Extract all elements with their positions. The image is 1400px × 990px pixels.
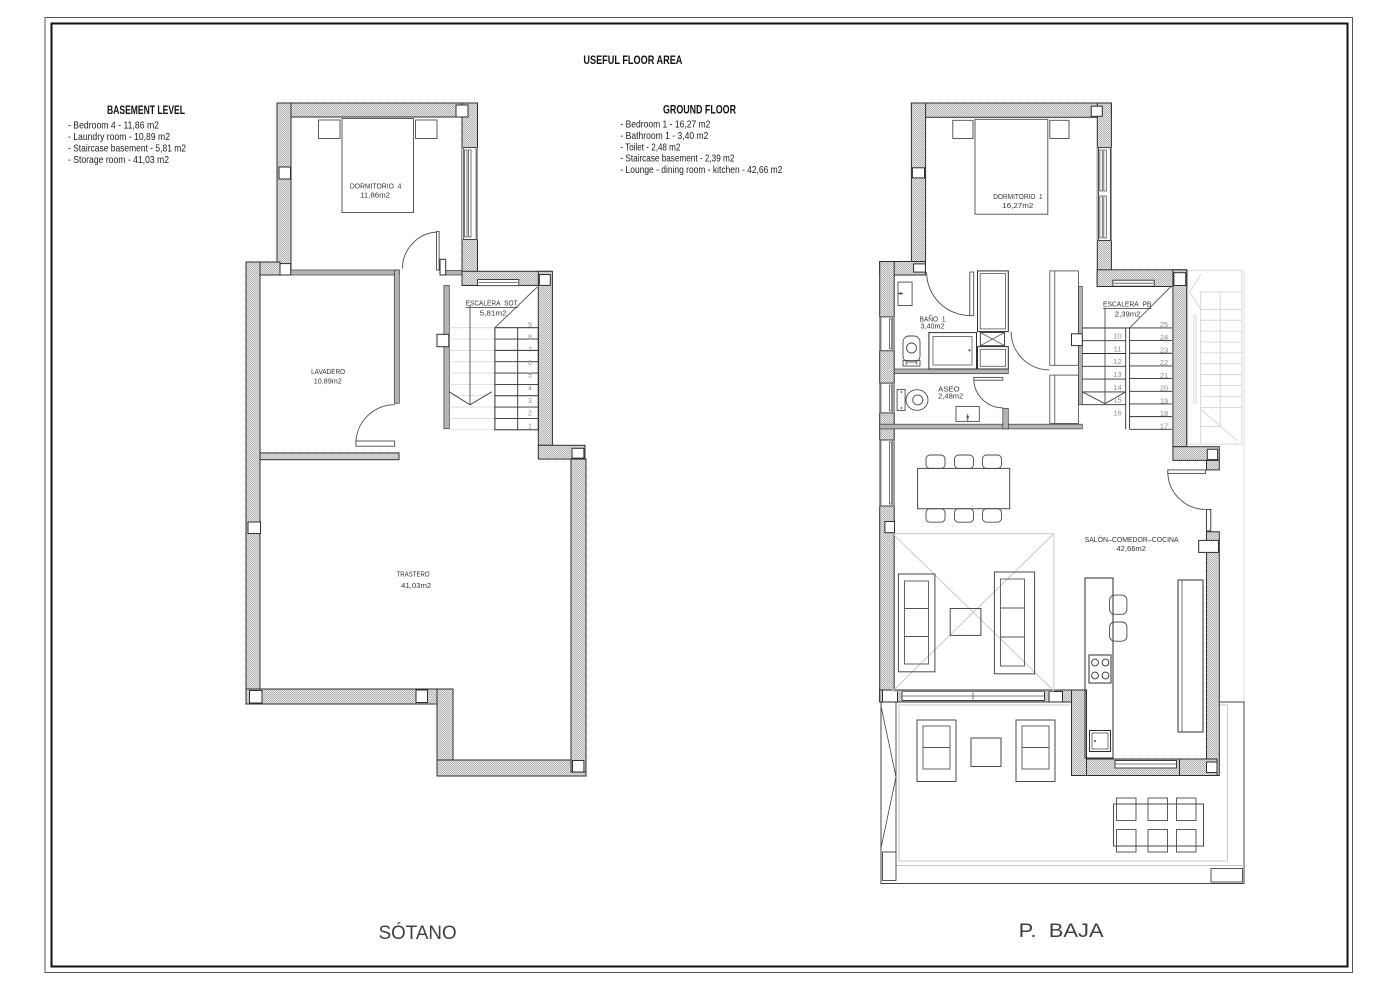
svg-text:22: 22	[1160, 358, 1168, 367]
svg-text:SÓTANO: SÓTANO	[379, 922, 457, 944]
svg-text:7: 7	[528, 347, 532, 354]
svg-text:ASEO: ASEO	[938, 386, 960, 393]
svg-text:10,89m2: 10,89m2	[314, 378, 342, 385]
svg-text:TRASTERO: TRASTERO	[397, 572, 430, 579]
svg-text:6: 6	[528, 360, 532, 367]
svg-text:42,66m2: 42,66m2	[1116, 546, 1146, 553]
svg-text:41,03m2: 41,03m2	[401, 583, 431, 590]
svg-text:LAVADERO: LAVADERO	[311, 369, 346, 376]
svg-text:8: 8	[528, 335, 532, 342]
svg-text:13: 13	[1113, 370, 1121, 379]
svg-text:21: 21	[1160, 371, 1168, 380]
svg-text:24: 24	[1160, 333, 1168, 342]
svg-text:17: 17	[1160, 422, 1168, 431]
svg-text:19: 19	[1160, 396, 1168, 405]
svg-text:ESCALERA PB: ESCALERA PB	[1103, 302, 1152, 309]
svg-text:SALÓN–COMEDOR–COCINA: SALÓN–COMEDOR–COCINA	[1085, 535, 1179, 544]
svg-text:4: 4	[528, 385, 532, 392]
svg-text:11,86m2: 11,86m2	[360, 192, 390, 199]
svg-text:- Staircase basement - 2,39 m2: - Staircase basement - 2,39 m2	[620, 153, 734, 165]
svg-text:3: 3	[528, 398, 532, 405]
svg-text:5: 5	[528, 373, 532, 380]
svg-text:12: 12	[1113, 357, 1121, 366]
svg-text:1: 1	[528, 423, 532, 430]
svg-text:DORMITORIO 4: DORMITORIO 4	[350, 183, 402, 190]
svg-text:14: 14	[1113, 383, 1121, 392]
svg-text:18: 18	[1160, 409, 1168, 418]
svg-text:- Staircase basement - 5,81 m2: - Staircase basement - 5,81 m2	[68, 142, 186, 154]
svg-text:11: 11	[1114, 344, 1122, 353]
svg-text:GROUND FLOOR: GROUND FLOOR	[663, 105, 737, 117]
svg-text:10: 10	[1113, 332, 1121, 341]
svg-text:ESCALERA SOT: ESCALERA SOT	[466, 301, 519, 308]
svg-text:16,27m2: 16,27m2	[1002, 203, 1033, 210]
svg-text:23: 23	[1160, 346, 1168, 355]
svg-text:20: 20	[1160, 384, 1168, 393]
svg-text:15: 15	[1113, 396, 1121, 405]
svg-text:- Bathroom 1 - 3,40 m2: - Bathroom 1 - 3,40 m2	[620, 130, 708, 142]
svg-text:DORMITORIO 1: DORMITORIO 1	[993, 194, 1043, 201]
svg-text:2: 2	[528, 411, 532, 418]
svg-text:BAÑO 1: BAÑO 1	[920, 314, 946, 323]
svg-text:16: 16	[1113, 408, 1121, 417]
svg-text:USEFUL FLOOR AREA: USEFUL FLOOR AREA	[583, 53, 682, 67]
svg-text:BASEMENT LEVEL: BASEMENT LEVEL	[107, 105, 185, 117]
svg-text:- Laundry room - 10,89 m2: - Laundry room - 10,89 m2	[68, 131, 170, 143]
svg-text:- Storage room - 41,03 m2: - Storage room - 41,03 m2	[68, 154, 169, 166]
svg-text:- Bedroom 4 - 11,86 m2: - Bedroom 4 - 11,86 m2	[68, 120, 159, 132]
svg-text:9: 9	[528, 322, 532, 329]
svg-text:- Bedroom 1 - 16,27 m2: - Bedroom 1 - 16,27 m2	[620, 119, 710, 131]
svg-text:3,40m2: 3,40m2	[921, 323, 945, 330]
svg-text:P. BAJA: P. BAJA	[1019, 921, 1104, 942]
svg-text:- Lounge - dining room - kitch: - Lounge - dining room - kitchen - 42,66…	[620, 164, 782, 176]
svg-text:25: 25	[1160, 320, 1168, 329]
svg-text:5,81m2: 5,81m2	[480, 310, 507, 317]
svg-text:- Toilet - 2,48 m2: - Toilet - 2,48 m2	[620, 141, 680, 153]
svg-text:2,39m2: 2,39m2	[1115, 311, 1141, 318]
svg-text:2,48m2: 2,48m2	[938, 394, 963, 401]
